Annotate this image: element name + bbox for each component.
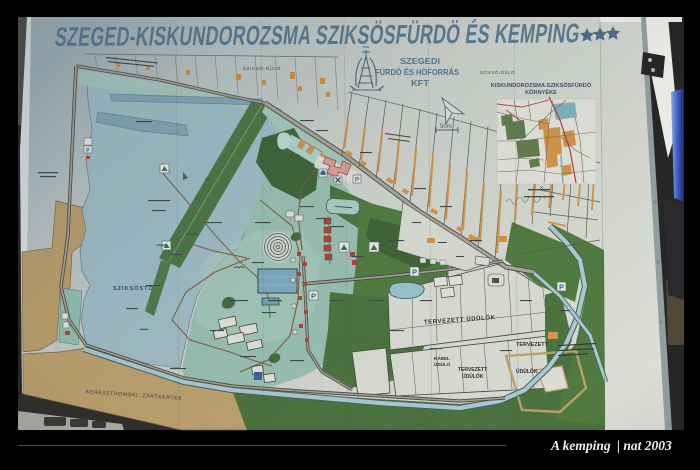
svg-text:| nat 2003: | nat 2003 <box>617 438 672 453</box>
svg-text:A kemping: A kemping <box>550 438 611 453</box>
